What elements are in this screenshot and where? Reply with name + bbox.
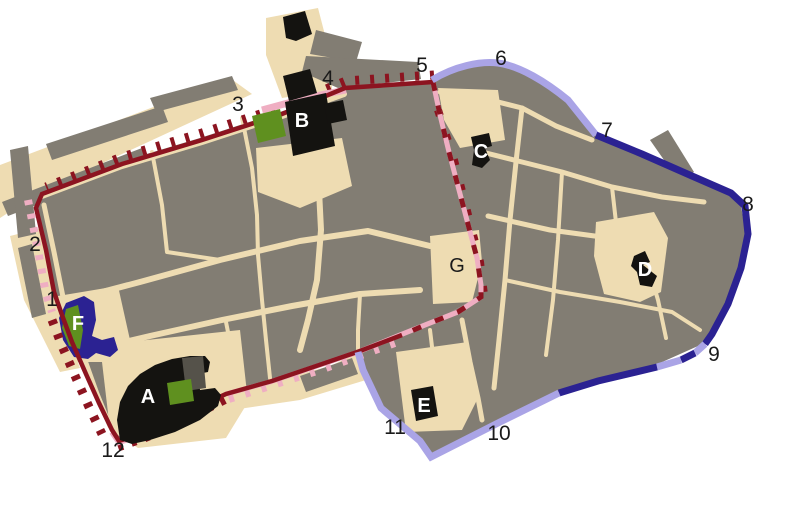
building-B-main [285,93,335,156]
point-label-7: 7 [601,119,613,142]
point-label-10: 10 [487,422,510,445]
building-A-green [167,379,194,405]
point-label-12: 12 [101,439,124,462]
wall-navy-bend-9 [681,353,695,360]
site-label-G: G [449,255,465,277]
point-label-5: 5 [416,54,428,77]
point-label-3: 3 [232,93,244,116]
point-label-11: 11 [384,416,406,439]
street [358,294,360,351]
point-label-2: 2 [29,233,41,256]
site-label-F: F [72,313,84,335]
point-label-4: 4 [322,67,334,90]
site-label-D: D [638,259,652,281]
point-label-1: 1 [46,288,58,311]
point-label-6: 6 [495,47,507,70]
site-label-B: B [295,110,309,132]
point-label-8: 8 [742,193,754,216]
site-label-E: E [417,395,430,417]
map-canvas: 1 2 3 4 5 6 7 8 9 10 11 12 A B C D E F G [0,0,800,515]
city-walls-map: 1 2 3 4 5 6 7 8 9 10 11 12 A B C D E F G [0,0,800,515]
plaza-around-D [594,212,668,302]
site-label-A: A [141,386,155,408]
site-label-C: C [474,141,488,163]
building-B-arm [324,100,347,124]
point-label-9: 9 [708,343,720,366]
